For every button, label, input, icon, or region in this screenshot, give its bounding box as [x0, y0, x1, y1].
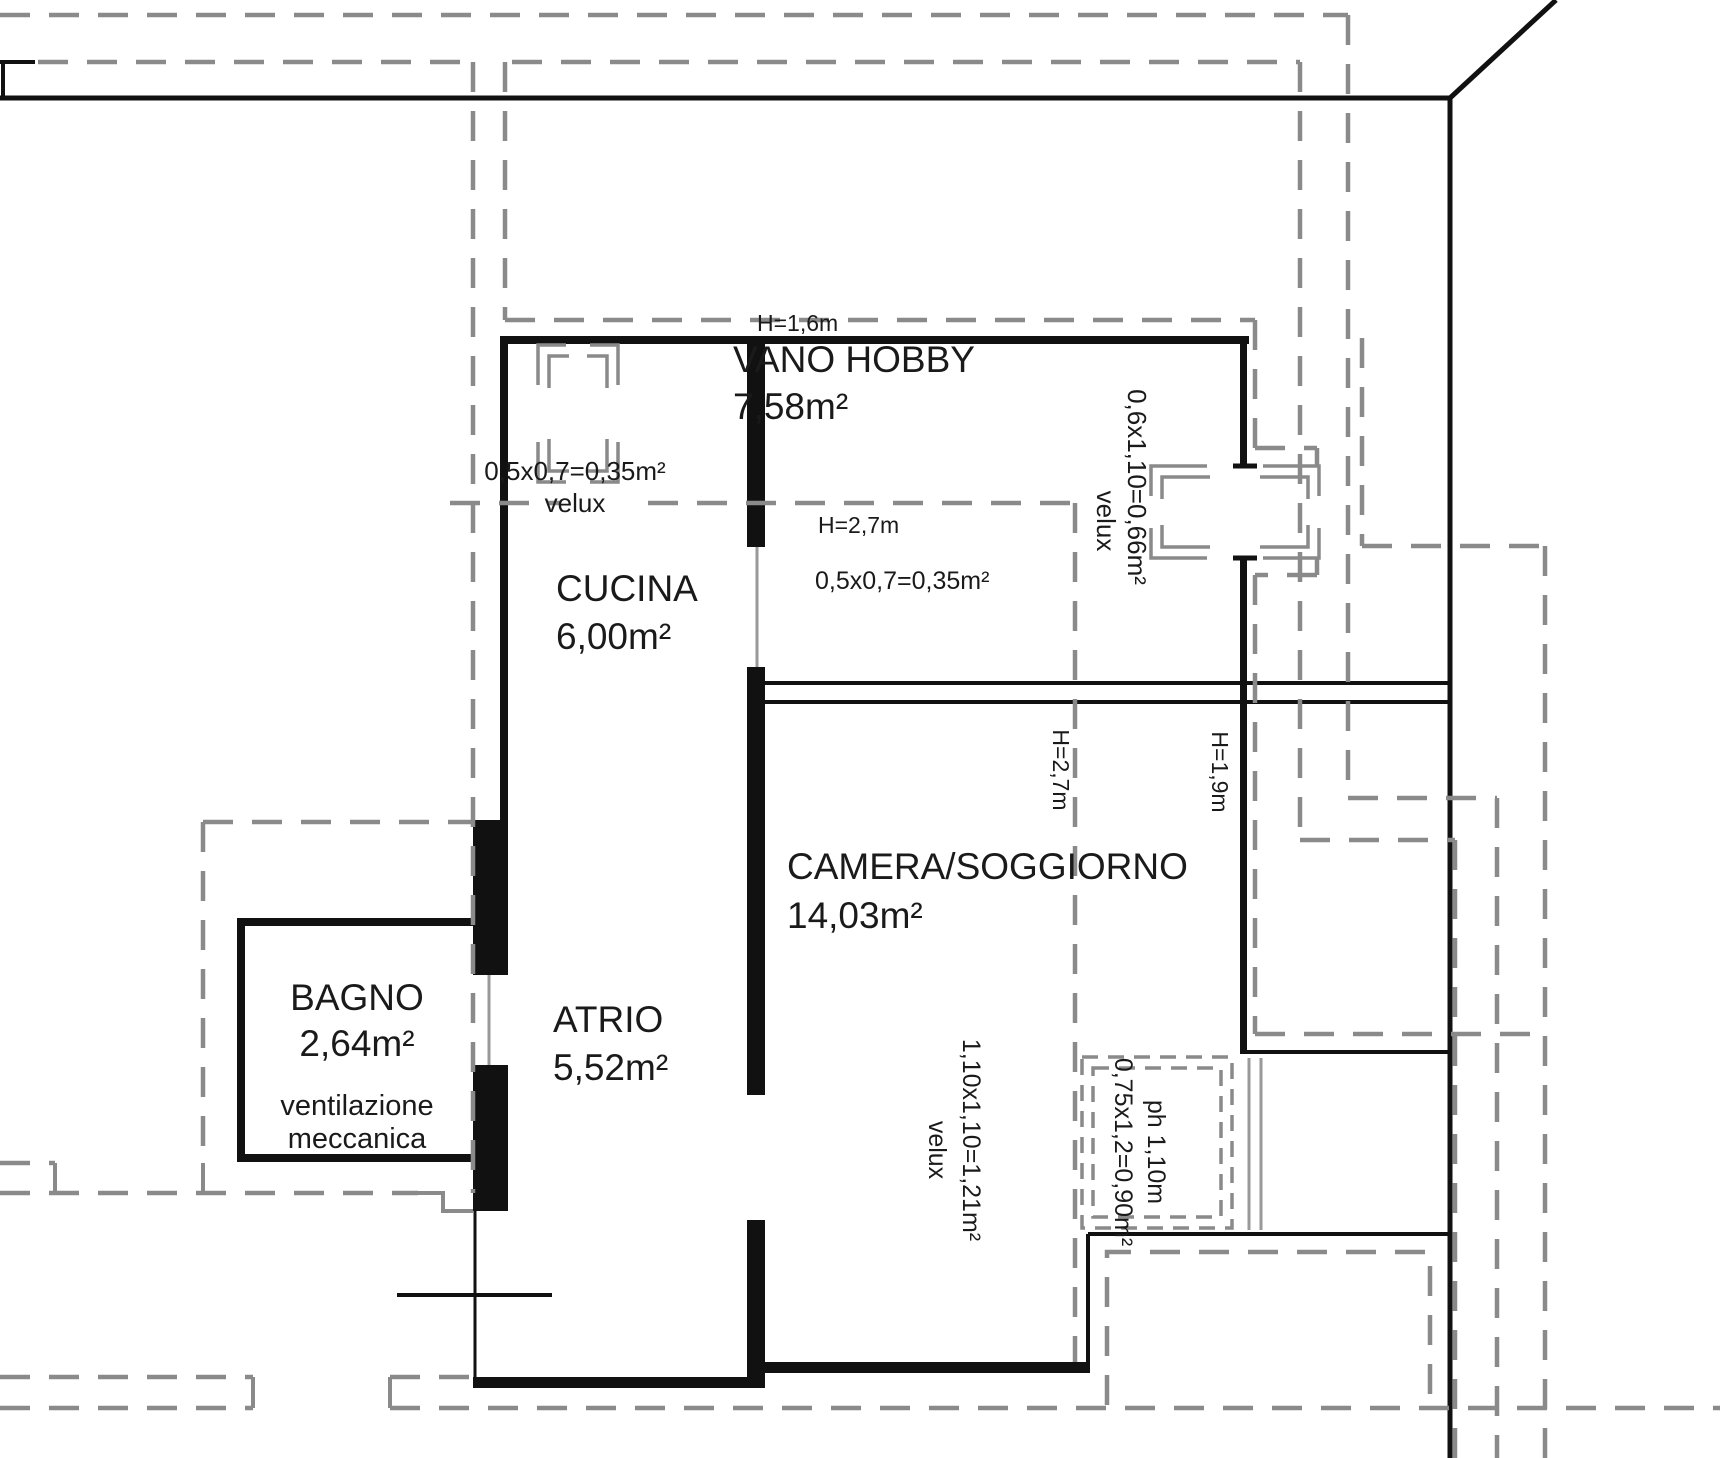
south-velux-dim-label: 1,10x1,10=1,21m²	[957, 1039, 985, 1241]
bagno-note1-label: ventilazione	[280, 1090, 433, 1122]
camera-height-main-label: H=2,7m	[1048, 729, 1074, 810]
camera-height-low-label: H=1,9m	[1207, 731, 1233, 812]
vano-area-label: 7,58m²	[733, 386, 848, 427]
velux-symbol-east	[1151, 466, 1319, 558]
vano-height-low-label: H=1,6m	[757, 310, 838, 336]
cucina-velux-dim-label: 0,5x0,7=0,35m²	[484, 456, 666, 486]
east-window-dim-label: 0,75x1,2=0,90m²	[1109, 1058, 1137, 1246]
cucina-area-label: 6,00m²	[556, 616, 671, 657]
east-velux-dim-label: 0,6x1,10=0,66m²	[1122, 389, 1152, 585]
dashed-bottom-band	[0, 1377, 1720, 1408]
bagno-note2-label: meccanica	[288, 1123, 427, 1155]
cucina-name-label: CUCINA	[556, 568, 698, 609]
atrio-area-label: 5,52m²	[553, 1047, 668, 1088]
dashed-right-outer	[1348, 15, 1497, 1458]
wall-lines	[397, 466, 1450, 1377]
wall-outer-left-stub	[0, 62, 35, 98]
east-window-ph-label: ph 1,10m	[1142, 1100, 1170, 1204]
floor-plan-page: H=1,6m VANO HOBBY 7,58m² H=2,7m 0,5x0,7=…	[0, 0, 1720, 1458]
dashed-ridge-top	[505, 62, 1255, 320]
atrio-name-label: ATRIO	[553, 999, 663, 1040]
bagno-name-label: BAGNO	[290, 977, 424, 1018]
cucina-velux-label: velux	[545, 488, 606, 518]
floor-plan-canvas: H=1,6m VANO HOBBY 7,58m² H=2,7m 0,5x0,7=…	[0, 0, 1720, 1458]
south-velux-label: velux	[923, 1121, 951, 1180]
vano-skylight-dim-label: 0,5x0,7=0,35m²	[815, 567, 989, 595]
camera-name-label: CAMERA/SOGGIORNO	[787, 846, 1188, 887]
camera-area-label: 14,03m²	[787, 895, 923, 936]
roof-boundary-dashed	[0, 15, 1720, 1458]
dashed-terrace-box	[1107, 1252, 1430, 1405]
outer-walls	[0, 0, 1556, 1458]
east-velux-label: velux	[1091, 491, 1121, 552]
bagno-area-label: 2,64m²	[299, 1023, 414, 1064]
vano-height-main-label: H=2,7m	[818, 512, 899, 538]
dashed-bottom-left	[0, 1163, 418, 1193]
dashed-right-mid	[1300, 62, 1455, 1458]
wall-outer-diagonal	[1450, 0, 1556, 98]
window-camera-east	[1249, 1058, 1261, 1230]
dashed-connectors	[55, 1163, 473, 1408]
velux-wall-caps	[1233, 466, 1257, 558]
vano-name-label: VANO HOBBY	[733, 339, 975, 380]
